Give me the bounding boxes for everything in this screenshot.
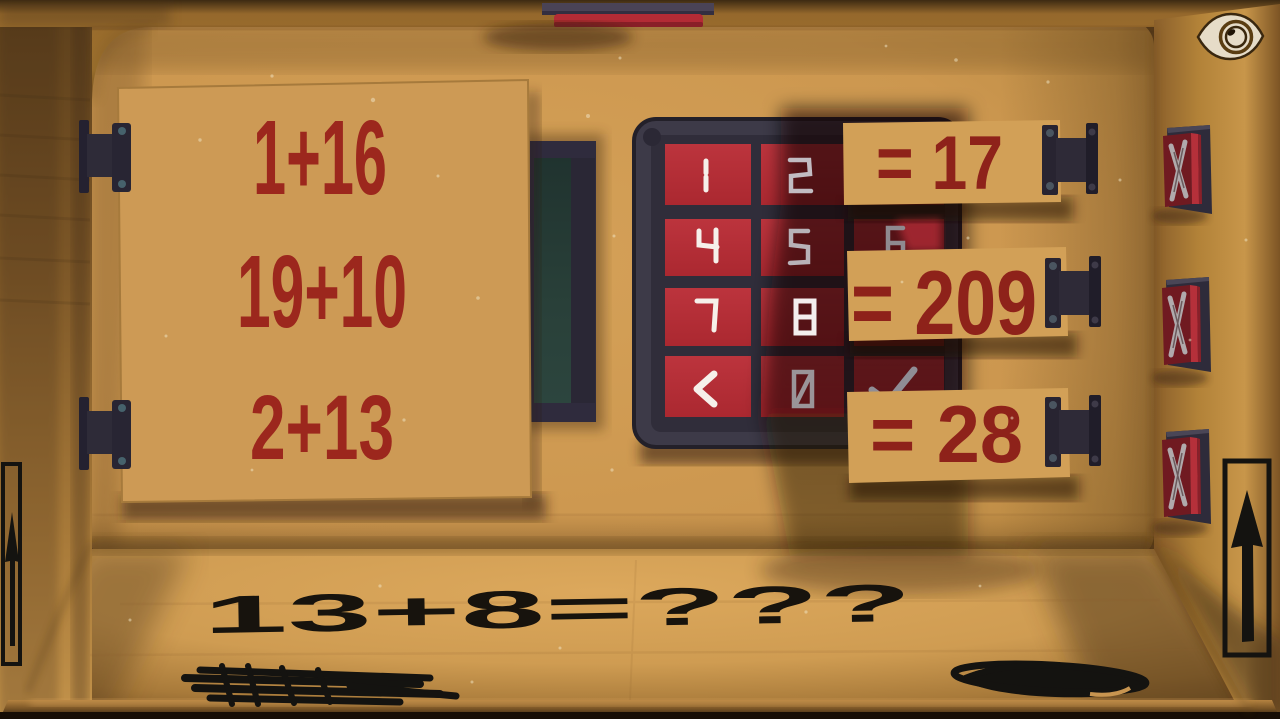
svg-text:1+16: 1+16 <box>253 99 387 217</box>
svg-text:= 28: = 28 <box>870 390 1023 480</box>
svg-text:= 209: = 209 <box>851 253 1037 354</box>
svg-text:= 17: = 17 <box>876 121 1003 206</box>
svg-text:2+13: 2+13 <box>250 377 394 479</box>
svg-text:13+8=???: 13+8=??? <box>203 574 913 645</box>
svg-text:19+10: 19+10 <box>237 234 407 349</box>
